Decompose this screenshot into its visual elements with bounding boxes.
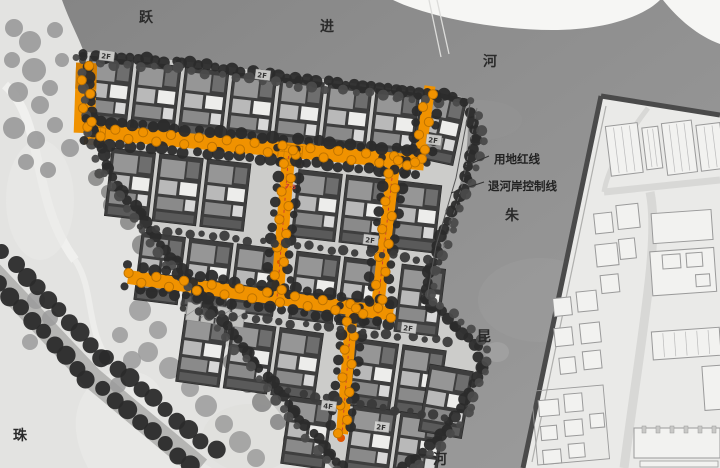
orange-tree-icon xyxy=(220,290,229,299)
street-tree-icon xyxy=(367,258,376,267)
boundary-tree-icon xyxy=(467,97,474,104)
boundary-tree-icon xyxy=(313,445,324,456)
floor-label: 2F xyxy=(101,52,112,61)
boundary-tree-icon xyxy=(472,135,481,144)
park-tree-icon xyxy=(42,80,58,96)
street-tree-icon xyxy=(323,136,336,149)
road-tree-icon xyxy=(13,299,29,315)
street-tree-icon xyxy=(375,142,388,155)
orange-tree-icon xyxy=(334,146,343,155)
existing-building xyxy=(618,238,636,260)
yard-tree-icon xyxy=(294,242,301,249)
orange-tree-icon xyxy=(277,285,286,294)
park-tree-icon xyxy=(149,321,167,339)
street-tree-icon xyxy=(203,292,215,304)
yard-tree-icon xyxy=(304,241,313,250)
street-tree-icon xyxy=(411,170,420,179)
yard-tree-icon xyxy=(441,414,448,421)
boundary-tree-icon xyxy=(200,69,210,79)
yard-tree-icon xyxy=(162,227,172,237)
boundary-tree-icon xyxy=(425,289,436,300)
street-tree-icon xyxy=(96,116,107,127)
park-tree-icon xyxy=(247,449,265,467)
orange-tree-icon xyxy=(235,284,244,293)
orange-tree-icon xyxy=(414,130,423,139)
existing-building xyxy=(702,365,720,410)
orange-tree-icon xyxy=(275,298,284,307)
street-tree-icon xyxy=(267,223,277,233)
boundary-tree-icon xyxy=(123,205,131,213)
boundary-tree-icon xyxy=(280,405,288,413)
orange-tree-icon xyxy=(393,156,402,165)
existing-building xyxy=(594,212,614,234)
boundary-tree-icon xyxy=(101,170,108,177)
street-tree-icon xyxy=(287,276,295,284)
park-tree-icon xyxy=(47,22,63,38)
label-river-right-char-1: 朱 xyxy=(505,207,520,224)
street-tree-icon xyxy=(295,159,305,169)
street-tree-icon xyxy=(377,180,389,192)
boundary-tree-icon xyxy=(108,173,117,182)
street-tree-icon xyxy=(265,249,274,258)
yard-tree-icon xyxy=(324,321,334,331)
existing-building xyxy=(695,274,710,287)
orange-tree-icon xyxy=(263,288,272,297)
boundary-tree-icon xyxy=(173,62,184,73)
park-lawn xyxy=(6,140,74,260)
street-tree-icon xyxy=(273,171,285,183)
street-tree-icon xyxy=(333,355,344,366)
existing-building xyxy=(568,443,585,458)
street-tree-icon xyxy=(103,139,116,152)
orange-tree-icon xyxy=(428,90,437,99)
existing-building xyxy=(576,290,598,312)
road-tree-icon xyxy=(144,389,162,407)
existing-building xyxy=(662,254,681,269)
road-tree-icon xyxy=(158,402,173,417)
floor-label: 2F xyxy=(403,324,414,333)
boundary-tree-icon xyxy=(431,283,438,290)
orange-tree-icon xyxy=(319,153,328,162)
road-tree-icon xyxy=(77,371,95,389)
floor-label-chip: 4F xyxy=(321,400,337,412)
yard-tree-icon xyxy=(367,399,377,409)
yard-tree-icon xyxy=(275,318,282,325)
street-tree-icon xyxy=(123,260,132,269)
park-tree-icon xyxy=(40,162,56,178)
boundary-tree-icon xyxy=(365,88,374,97)
orange-tree-icon xyxy=(87,117,96,126)
orange-tree-icon xyxy=(345,388,354,397)
road-tree-icon xyxy=(36,324,51,339)
boundary-tree-icon xyxy=(294,83,303,92)
yard-tree-icon xyxy=(260,238,266,244)
street-tree-icon xyxy=(354,164,363,173)
park-tree-icon xyxy=(18,154,34,170)
park-tree-icon xyxy=(27,131,45,149)
orange-tree-icon xyxy=(77,76,86,85)
street-tree-icon xyxy=(364,271,375,282)
yard-tree-icon xyxy=(351,249,358,256)
park-tree-icon xyxy=(229,431,251,453)
column-mark xyxy=(712,426,716,433)
park-tree-icon xyxy=(8,82,28,102)
street-tree-icon xyxy=(254,302,264,312)
boundary-tree-icon xyxy=(483,346,491,354)
existing-building xyxy=(634,428,720,458)
existing-building xyxy=(595,243,619,267)
cad-blocks xyxy=(634,426,720,467)
boundary-tree-icon xyxy=(480,137,488,145)
yard-tree-icon xyxy=(328,247,336,255)
orange-tree-icon xyxy=(418,102,427,111)
street-tree-icon xyxy=(224,151,234,161)
courtyard-house xyxy=(200,159,251,232)
floor-label: 4F xyxy=(323,402,334,411)
street-tree-icon xyxy=(138,262,149,273)
floor-label-chip: 2F xyxy=(99,50,115,62)
yard-tree-icon xyxy=(381,329,391,339)
street-tree-icon xyxy=(388,286,396,294)
label-river-right-char-2: 昆 xyxy=(477,329,491,345)
column-mark xyxy=(684,426,688,433)
orange-tree-icon xyxy=(386,313,395,322)
floor-label-chip: 2F xyxy=(374,421,390,433)
boundary-tree-icon xyxy=(446,429,455,438)
boundary-tree-icon xyxy=(456,205,464,213)
street-tree-icon xyxy=(365,297,375,307)
yard-tree-icon xyxy=(442,337,452,347)
boundary-tree-icon xyxy=(146,239,155,248)
street-tree-icon xyxy=(148,121,159,132)
yard-tree-icon xyxy=(394,333,401,340)
street-tree-icon xyxy=(195,271,206,282)
boundary-tree-icon xyxy=(246,361,256,371)
screenshot-stage: 跃 进 河 用地红线 退河岸控制线 朱 昆 河 珠 7-5 2F2F2F2F2F… xyxy=(0,0,720,468)
orange-tree-icon xyxy=(420,145,429,154)
park-tree-icon xyxy=(129,299,151,321)
road-tree-icon xyxy=(118,400,137,419)
park-tree-icon xyxy=(5,19,23,37)
orange-tree-icon xyxy=(84,61,93,70)
road-tree-icon xyxy=(192,433,208,449)
park-tree-icon xyxy=(19,31,41,53)
orange-tree-icon xyxy=(340,345,349,354)
park-tree-icon xyxy=(55,53,69,67)
street-tree-icon xyxy=(411,118,420,127)
boundary-tree-icon xyxy=(473,164,480,171)
floor-label: 2F xyxy=(428,136,439,145)
yard-tree-icon xyxy=(347,324,356,333)
floor-label-chip: 2F xyxy=(401,322,417,334)
street-tree-icon xyxy=(146,287,158,299)
orange-tree-icon xyxy=(362,149,371,158)
boundary-tree-icon xyxy=(418,448,427,457)
boundary-tree-icon xyxy=(234,335,243,344)
yard-tree-icon xyxy=(285,387,291,393)
yard-tree-icon xyxy=(228,312,237,321)
street-tree-icon xyxy=(115,140,125,150)
street-tree-icon xyxy=(157,119,170,132)
boundary-tree-icon xyxy=(284,412,294,422)
boundary-tree-icon xyxy=(114,190,125,201)
street-tree-icon xyxy=(303,287,312,296)
street-tree-icon xyxy=(314,135,325,146)
orange-tree-icon xyxy=(279,159,288,168)
boundary-tree-icon xyxy=(475,378,484,387)
street-tree-icon xyxy=(432,109,443,120)
orange-tree-icon xyxy=(208,142,217,151)
yard-tree-icon xyxy=(407,408,413,414)
street-tree-icon xyxy=(396,195,405,204)
boundary-tree-icon xyxy=(79,52,88,61)
label-river-top-char-1: 跃 xyxy=(139,10,154,26)
boundary-tree-icon xyxy=(460,98,469,107)
orange-tree-icon xyxy=(152,137,161,146)
street-tree-icon xyxy=(121,282,129,290)
orange-tree-icon xyxy=(166,130,175,139)
existing-building xyxy=(554,327,574,347)
road-tree-icon xyxy=(208,441,226,459)
orange-tree-icon xyxy=(124,268,133,277)
floor-label-chip: 2F xyxy=(255,69,271,81)
orange-tree-icon xyxy=(282,229,291,238)
orange-tree-icon xyxy=(384,169,393,178)
yard-tree-icon xyxy=(337,326,344,333)
yard-tree-icon xyxy=(310,392,320,402)
boundary-tree-icon xyxy=(449,308,459,318)
street-tree-icon xyxy=(415,92,423,100)
street-tree-icon xyxy=(126,119,138,131)
boundary-tree-icon xyxy=(476,125,487,136)
orange-tree-icon xyxy=(343,415,352,424)
boundary-tree-icon xyxy=(301,434,310,443)
orange-tree-icon xyxy=(279,257,288,266)
boundary-tree-icon xyxy=(464,407,474,417)
orange-tree-icon xyxy=(371,280,380,289)
street-tree-icon xyxy=(245,153,254,162)
yard-tree-icon xyxy=(218,310,225,317)
road-tree-icon xyxy=(99,350,114,365)
street-tree-icon xyxy=(400,169,410,179)
yard-tree-icon xyxy=(379,252,385,258)
orange-tree-icon xyxy=(96,132,105,141)
street-tree-icon xyxy=(287,304,298,315)
street-tree-icon xyxy=(270,197,281,208)
boundary-tree-icon xyxy=(436,302,444,310)
column-mark xyxy=(670,426,674,433)
yard-tree-icon xyxy=(356,400,364,408)
street-tree-icon xyxy=(336,292,346,302)
boundary-tree-icon xyxy=(482,357,492,367)
street-tree-icon xyxy=(169,290,180,301)
yard-tree-icon xyxy=(400,252,410,262)
yard-tree-icon xyxy=(418,410,426,418)
street-tree-icon xyxy=(167,145,177,155)
boundary-tree-icon xyxy=(286,81,293,88)
boundary-tree-icon xyxy=(108,60,119,71)
boundary-tree-icon xyxy=(338,85,348,95)
boundary-tree-icon xyxy=(263,383,272,392)
orange-tree-icon xyxy=(179,276,188,285)
yard-tree-icon xyxy=(300,390,308,398)
boundary-tree-icon xyxy=(378,90,389,101)
orange-tree-icon xyxy=(331,305,340,314)
road-tree-icon xyxy=(95,381,110,396)
yard-tree-icon xyxy=(241,313,247,319)
orange-tree-icon xyxy=(333,429,342,438)
orange-tree-icon xyxy=(278,141,287,150)
orange-tree-icon xyxy=(424,117,433,126)
street-tree-icon xyxy=(356,343,365,352)
boundary-tree-icon xyxy=(293,422,300,429)
orange-tree-icon xyxy=(381,267,390,276)
orange-tree-icon xyxy=(78,104,87,113)
boundary-tree-icon xyxy=(409,96,416,103)
street-tree-icon xyxy=(246,278,255,287)
label-river-right-char-3: 河 xyxy=(433,451,447,468)
boundary-tree-icon xyxy=(214,325,221,332)
floor-label-chip: 2F xyxy=(426,134,442,146)
label-setback-line: 退河岸控制线 xyxy=(488,179,557,193)
street-tree-icon xyxy=(179,125,191,137)
orange-tree-icon xyxy=(384,239,393,248)
park-tree-icon xyxy=(215,415,233,433)
orange-tree-icon xyxy=(152,272,161,281)
yard-tree-icon xyxy=(152,225,160,233)
orange-tree-icon xyxy=(378,225,387,234)
orange-tree-icon xyxy=(290,292,299,301)
street-tree-icon xyxy=(344,139,356,151)
road-tree-icon xyxy=(51,302,66,317)
street-tree-icon xyxy=(292,133,304,145)
yard-tree-icon xyxy=(413,257,420,264)
yard-tree-icon xyxy=(432,335,440,343)
boundary-tree-icon xyxy=(136,62,146,72)
courtyard-house xyxy=(152,153,203,226)
yard-tree-icon xyxy=(186,230,195,239)
yard-tree-icon xyxy=(137,223,143,229)
boundary-tree-icon xyxy=(270,395,281,406)
yard-tree-icon xyxy=(180,305,186,311)
boundary-tree-icon xyxy=(153,247,164,258)
yard-tree-icon xyxy=(198,231,204,237)
yard-tree-icon xyxy=(262,313,272,323)
existing-building xyxy=(540,425,557,440)
street-tree-icon xyxy=(364,163,375,174)
orange-tree-icon xyxy=(270,271,279,280)
boundary-tree-icon xyxy=(151,63,158,70)
orange-tree-icon xyxy=(390,184,399,193)
boundary-tree-icon xyxy=(92,155,100,163)
orange-tree-icon xyxy=(86,89,95,98)
orange-tree-icon xyxy=(263,148,272,157)
orange-tree-icon xyxy=(275,215,284,224)
street-tree-icon xyxy=(136,142,145,151)
orange-tree-icon xyxy=(222,136,231,145)
yard-tree-icon xyxy=(209,232,217,240)
boundary-tree-icon xyxy=(243,355,251,363)
orange-tree-icon xyxy=(347,156,356,165)
street-tree-icon xyxy=(80,136,89,145)
orange-tree-icon xyxy=(318,296,327,305)
street-tree-icon xyxy=(266,131,279,144)
boundary-tree-icon xyxy=(221,333,230,342)
yard-tree-icon xyxy=(338,245,348,255)
boundary-tree-icon xyxy=(219,71,226,78)
street-tree-icon xyxy=(262,262,273,273)
boundary-tree-icon xyxy=(424,439,436,451)
boundary-tree-icon xyxy=(456,421,463,428)
yard-tree-icon xyxy=(205,309,215,319)
label-river-top-char-2: 进 xyxy=(320,19,334,35)
orange-tree-icon xyxy=(347,360,356,369)
orange-tree-icon xyxy=(375,158,384,167)
orange-tree-icon xyxy=(381,197,390,206)
orange-tree-icon xyxy=(306,144,315,153)
floor-label: 2F xyxy=(257,71,268,80)
yard-tree-icon xyxy=(370,331,378,339)
orange-tree-icon xyxy=(284,202,293,211)
boundary-tree-icon xyxy=(228,344,239,355)
street-tree-icon xyxy=(182,291,190,299)
orange-tree-icon xyxy=(410,158,419,167)
orange-tree-icon xyxy=(387,212,396,221)
orange-tree-icon xyxy=(374,303,383,312)
yard-tree-icon xyxy=(303,321,309,327)
existing-building xyxy=(559,357,577,375)
column-mark xyxy=(642,426,646,433)
yard-tree-icon xyxy=(219,231,229,241)
park-tree-icon xyxy=(22,58,46,82)
existing-building xyxy=(640,461,718,467)
boundary-tree-icon xyxy=(321,86,329,94)
boundary-tree-icon xyxy=(244,72,255,83)
boundary-tree-icon xyxy=(435,441,446,452)
yard-tree-icon xyxy=(436,259,442,265)
column-mark xyxy=(656,426,660,433)
road-tree-icon xyxy=(144,422,162,440)
orange-tree-icon xyxy=(192,286,201,295)
boundary-tree-icon xyxy=(394,91,404,101)
orange-tree-icon xyxy=(288,146,297,155)
park-tree-icon xyxy=(112,327,128,343)
yard-tree-icon xyxy=(195,307,203,315)
yard-tree-icon xyxy=(389,250,397,258)
boundary-tree-icon xyxy=(187,67,195,75)
boundary-tree-icon xyxy=(482,368,489,375)
yard-tree-icon xyxy=(346,398,352,404)
street-tree-icon xyxy=(226,299,237,310)
existing-building xyxy=(543,449,562,465)
street-tree-icon xyxy=(326,420,337,431)
boundary-tree-icon xyxy=(271,76,281,86)
site-plan-map: 跃 进 河 用地红线 退河岸控制线 朱 昆 河 珠 7-5 2F2F2F2F2F… xyxy=(0,0,720,468)
orange-tree-icon xyxy=(235,145,244,154)
orange-tree-icon xyxy=(248,294,257,303)
existing-building xyxy=(579,322,601,344)
yard-tree-icon xyxy=(286,320,295,329)
yard-tree-icon xyxy=(175,228,182,235)
park-tree-icon xyxy=(31,96,49,114)
yard-tree-icon xyxy=(252,315,260,323)
street-tree-icon xyxy=(353,369,361,377)
street-tree-icon xyxy=(290,211,298,219)
street-tree-icon xyxy=(333,162,343,172)
boundary-tree-icon xyxy=(323,456,331,464)
boundary-tree-icon xyxy=(107,182,116,191)
street-tree-icon xyxy=(193,147,202,156)
